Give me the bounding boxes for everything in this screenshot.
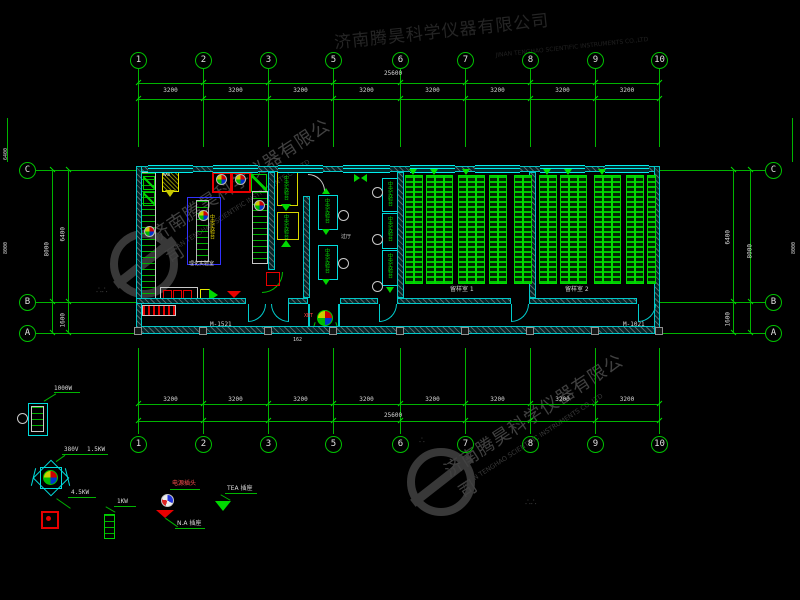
column-marker — [329, 327, 337, 335]
grid-line-horizontal — [35, 333, 136, 334]
sample-rack — [426, 175, 435, 284]
sample-rack — [626, 175, 635, 284]
rack-mount-icon — [543, 169, 551, 175]
room-label-sample1: 留样室 1 — [450, 286, 474, 293]
legend-exhaust-inner — [31, 406, 44, 432]
grid-bubble-top: 10 — [651, 52, 668, 69]
dim-line — [68, 170, 69, 333]
wall — [268, 172, 275, 270]
dim-line — [138, 83, 659, 84]
fan-icon — [144, 226, 155, 237]
dim-seg-label: 3200 — [355, 396, 379, 403]
fan-icon — [216, 174, 227, 185]
column-marker — [199, 327, 207, 335]
grid-bubble-left: B — [19, 294, 36, 311]
grid-bubble-top: 1 — [130, 52, 147, 69]
corridor-wall — [397, 298, 511, 304]
grid-bubble-right: B — [765, 294, 782, 311]
dim-side-label: 1600 — [725, 301, 732, 327]
dim-seg-label: 3200 — [224, 396, 248, 403]
grid-bubble-bottom: 10 — [651, 436, 668, 453]
rack-mount-icon — [462, 169, 470, 175]
sample-rack — [444, 175, 453, 284]
grid-bubble-left: A — [19, 325, 36, 342]
door-arc — [511, 304, 529, 322]
floor-drain-icon — [227, 291, 241, 298]
watermark-en-text: JINAN TENGHAO SCIENTIFIC INSTRUMENTS CO.… — [461, 363, 650, 490]
speaker-icon — [281, 204, 291, 211]
window — [278, 165, 323, 173]
grid-line-horizontal — [35, 170, 136, 171]
dim-side-label: 6400 — [725, 219, 732, 245]
dim-seg-label: 3200 — [486, 396, 510, 403]
window — [148, 165, 193, 173]
sample-rack — [635, 175, 644, 284]
column-marker — [655, 327, 663, 335]
ceiling-fan-icon — [354, 174, 360, 182]
watermark-sparkle: ∴ — [419, 436, 425, 446]
dim-seg-label: 3200 — [289, 87, 313, 94]
column-marker — [264, 327, 272, 335]
sample-rack — [405, 175, 414, 284]
watermark-top-right: 济南腾昊科学仪器有限公司 JINAN TENGHAO SCIENTIFIC IN… — [325, 0, 725, 58]
bench-label: 中央实验台 — [324, 248, 329, 273]
grid-bubble-bottom: 2 — [195, 436, 212, 453]
supply-box-icon — [143, 192, 155, 206]
leader-line — [105, 506, 115, 512]
leader-line — [44, 393, 56, 401]
corridor-wall — [136, 298, 246, 304]
sample-rack — [458, 175, 467, 284]
dim-line — [138, 404, 659, 405]
edge-dim-label: 6400 — [3, 138, 9, 160]
speaker-icon — [322, 229, 330, 235]
grid-line-horizontal — [660, 333, 765, 334]
edge-line — [792, 118, 793, 162]
watermark-bottom-right: 济南腾昊科学仪器有限公司 JINAN TENGHAO SCIENTIFIC IN… — [385, 330, 695, 535]
speaker-icon — [322, 188, 330, 194]
grid-bubble-bottom: 9 — [587, 436, 604, 453]
entrance-fan-icon — [317, 310, 333, 326]
leader-line — [170, 489, 200, 490]
grid-bubble-top: 5 — [325, 52, 342, 69]
fan-icon — [235, 174, 246, 185]
fan-icon — [198, 210, 209, 221]
stool — [338, 258, 349, 269]
legend-fan-icon — [43, 470, 58, 485]
legend-circle — [17, 413, 28, 424]
grid-bubble-bottom: 5 — [325, 436, 342, 453]
leader-line — [56, 455, 66, 462]
rack-mount-icon — [564, 169, 572, 175]
stool — [372, 187, 383, 198]
door-leaf — [638, 304, 639, 321]
speaker-icon — [281, 240, 291, 247]
legend-tea-triangle-icon — [215, 501, 231, 511]
door-leaf — [288, 304, 289, 321]
edge-dim-label: 8000 — [791, 232, 797, 254]
grid-bubble-bottom: 1 — [130, 436, 147, 453]
dim-seg-label: 3200 — [289, 396, 313, 403]
sample-rack — [578, 175, 587, 284]
rack-mount-icon — [598, 169, 606, 175]
legend-label-kw1: 1.5KW — [87, 446, 105, 453]
leader-line — [62, 454, 108, 455]
dim-seg-label: 3200 — [421, 87, 445, 94]
legend-label-kw2: 4.5KW — [71, 489, 89, 496]
sample-rack — [548, 175, 557, 284]
bench-label: 中央实验台 — [209, 214, 214, 239]
bench-label: 中央实验台 — [324, 198, 329, 223]
dim-line — [733, 170, 734, 333]
room-label-lab: 理化实验室 — [189, 261, 214, 267]
leader-line — [225, 493, 257, 494]
entrance-fan-label: XBT — [304, 313, 313, 319]
sample-rack — [569, 175, 578, 284]
window — [343, 165, 390, 173]
bench-label: 中央实验台 — [387, 181, 392, 206]
window — [475, 165, 520, 173]
column-marker — [526, 327, 534, 335]
wall — [397, 172, 404, 298]
ceiling-fan-icon — [361, 174, 367, 182]
grid-bubble-bottom: 7 — [457, 436, 474, 453]
stool — [372, 281, 383, 292]
grid-bubble-top: 8 — [522, 52, 539, 69]
corridor-wall — [529, 298, 637, 304]
dim-seg-label: 3200 — [159, 87, 183, 94]
leader-line — [114, 506, 136, 507]
grid-bubble-top: 6 — [392, 52, 409, 69]
supply-box-icon — [143, 176, 155, 190]
wall — [303, 196, 310, 298]
sample-rack — [612, 175, 621, 284]
dim-seg-label: 3200 — [615, 396, 639, 403]
dim-line — [138, 99, 659, 100]
wall — [136, 166, 142, 334]
door-leaf — [511, 304, 512, 321]
door-leaf — [266, 272, 280, 286]
bench-label: 中央实验台 — [387, 253, 392, 278]
sample-rack — [514, 175, 523, 284]
dim-seg-label: 3200 — [486, 87, 510, 94]
speaker-icon — [386, 287, 394, 293]
gas-cabinet-label: MAX — [163, 173, 170, 178]
sample-rack — [647, 175, 656, 284]
door-arc — [248, 304, 266, 322]
leader-line — [165, 518, 178, 527]
column-marker — [591, 327, 599, 335]
room-label-sample2: 留样室 2 — [565, 286, 589, 293]
watermark-cn-text: 济南腾昊科学仪器有限公司 — [333, 0, 723, 53]
sample-rack — [560, 175, 569, 284]
grid-bubble-top: 2 — [195, 52, 212, 69]
rack-mount-icon — [430, 169, 438, 175]
floor-grille — [142, 305, 176, 316]
bench-label: 中央实验台 — [283, 214, 288, 239]
dim-seg-label: 3200 — [615, 87, 639, 94]
entry-dim-label: 162 — [293, 337, 302, 343]
speaker-icon — [322, 279, 330, 285]
door-leaf — [248, 304, 249, 321]
sample-rack — [594, 175, 603, 284]
leader-line — [220, 494, 230, 500]
watermark-sparkle: ∴∴ — [525, 498, 536, 508]
dim-seg-label: 3200 — [551, 87, 575, 94]
dim-side-label: 8000 — [44, 231, 51, 257]
watermark-sparkle: ∴∴ — [96, 286, 107, 296]
window — [213, 165, 258, 173]
legend-socket-icon — [161, 494, 174, 507]
sample-rack — [414, 175, 423, 284]
dim-side-label: 6400 — [60, 216, 67, 242]
sample-rack — [523, 175, 532, 284]
supply-cabinet — [251, 174, 267, 192]
legend-label-kw3: 1KW — [117, 498, 128, 505]
legend-label-tea: TEA 插座 — [227, 485, 252, 492]
door-arc — [379, 304, 397, 322]
bench-label: 中央实验台 — [283, 175, 288, 200]
sample-rack — [467, 175, 476, 284]
rack-mount-icon — [409, 169, 417, 175]
grid-bubble-top: 3 — [260, 52, 277, 69]
sample-rack — [489, 175, 498, 284]
legend-plug-title: 电源插头 — [172, 480, 196, 487]
legend-red-dot — [46, 516, 51, 521]
stool — [338, 210, 349, 221]
legend-label-volt: 380V — [64, 446, 78, 453]
grid-bubble-bottom: 8 — [522, 436, 539, 453]
sample-rack — [435, 175, 444, 284]
window — [605, 165, 649, 173]
sample-rack — [476, 175, 485, 284]
stool — [372, 234, 383, 245]
dim-seg-label: 3200 — [159, 396, 183, 403]
dim-seg-label: 3200 — [551, 396, 575, 403]
dim-total-label: 25600 — [384, 412, 402, 419]
cabinet-fold-icon — [165, 190, 175, 197]
grid-bubble-top: 7 — [457, 52, 474, 69]
column-marker — [461, 327, 469, 335]
grid-bubble-right: C — [765, 162, 782, 179]
edge-dim-label: 8000 — [3, 232, 9, 254]
door-leaf — [379, 304, 380, 321]
column-marker — [134, 327, 142, 335]
bench-label: 中央实验台 — [387, 216, 392, 241]
sample-rack — [539, 175, 548, 284]
corridor-wall — [340, 298, 378, 304]
watermark-cn-text: 济南腾昊科学仪器有限公司 — [438, 342, 649, 504]
dim-line — [52, 170, 53, 333]
dim-seg-label: 3200 — [224, 87, 248, 94]
grid-bubble-left: C — [19, 162, 36, 179]
fan-icon — [254, 200, 265, 211]
sample-rack — [498, 175, 507, 284]
dim-seg-label: 3200 — [421, 396, 445, 403]
grid-bubble-bottom: 6 — [392, 436, 409, 453]
leader-line — [68, 497, 96, 498]
dim-side-label: 8000 — [747, 233, 754, 259]
grid-bubble-top: 9 — [587, 52, 604, 69]
legend-label-na: N.A 插座 — [177, 520, 201, 527]
sample-rack — [603, 175, 612, 284]
dim-seg-label: 3200 — [355, 87, 379, 94]
grid-bubble-right: A — [765, 325, 782, 342]
leader-line — [175, 528, 205, 529]
column-marker — [396, 327, 404, 335]
legend-ladder — [104, 514, 115, 539]
leader-line — [56, 498, 70, 509]
grid-bubble-bottom: 3 — [260, 436, 277, 453]
corridor-wall — [288, 298, 308, 304]
room-label-hall: 过厅 — [341, 234, 351, 240]
door-arc — [271, 304, 289, 322]
dim-total-label: 25600 — [384, 70, 402, 77]
legend-label-1000w: 1000W — [54, 385, 72, 392]
dim-side-label: 1600 — [60, 302, 67, 328]
cad-drawing-canvas: 济南腾昊科学仪器有限公司 JINAN TENGHAO SCIENTIFIC IN… — [0, 0, 800, 600]
grid-line-horizontal — [35, 302, 136, 303]
dim-line — [138, 421, 659, 422]
company-logo-icon — [407, 448, 475, 516]
